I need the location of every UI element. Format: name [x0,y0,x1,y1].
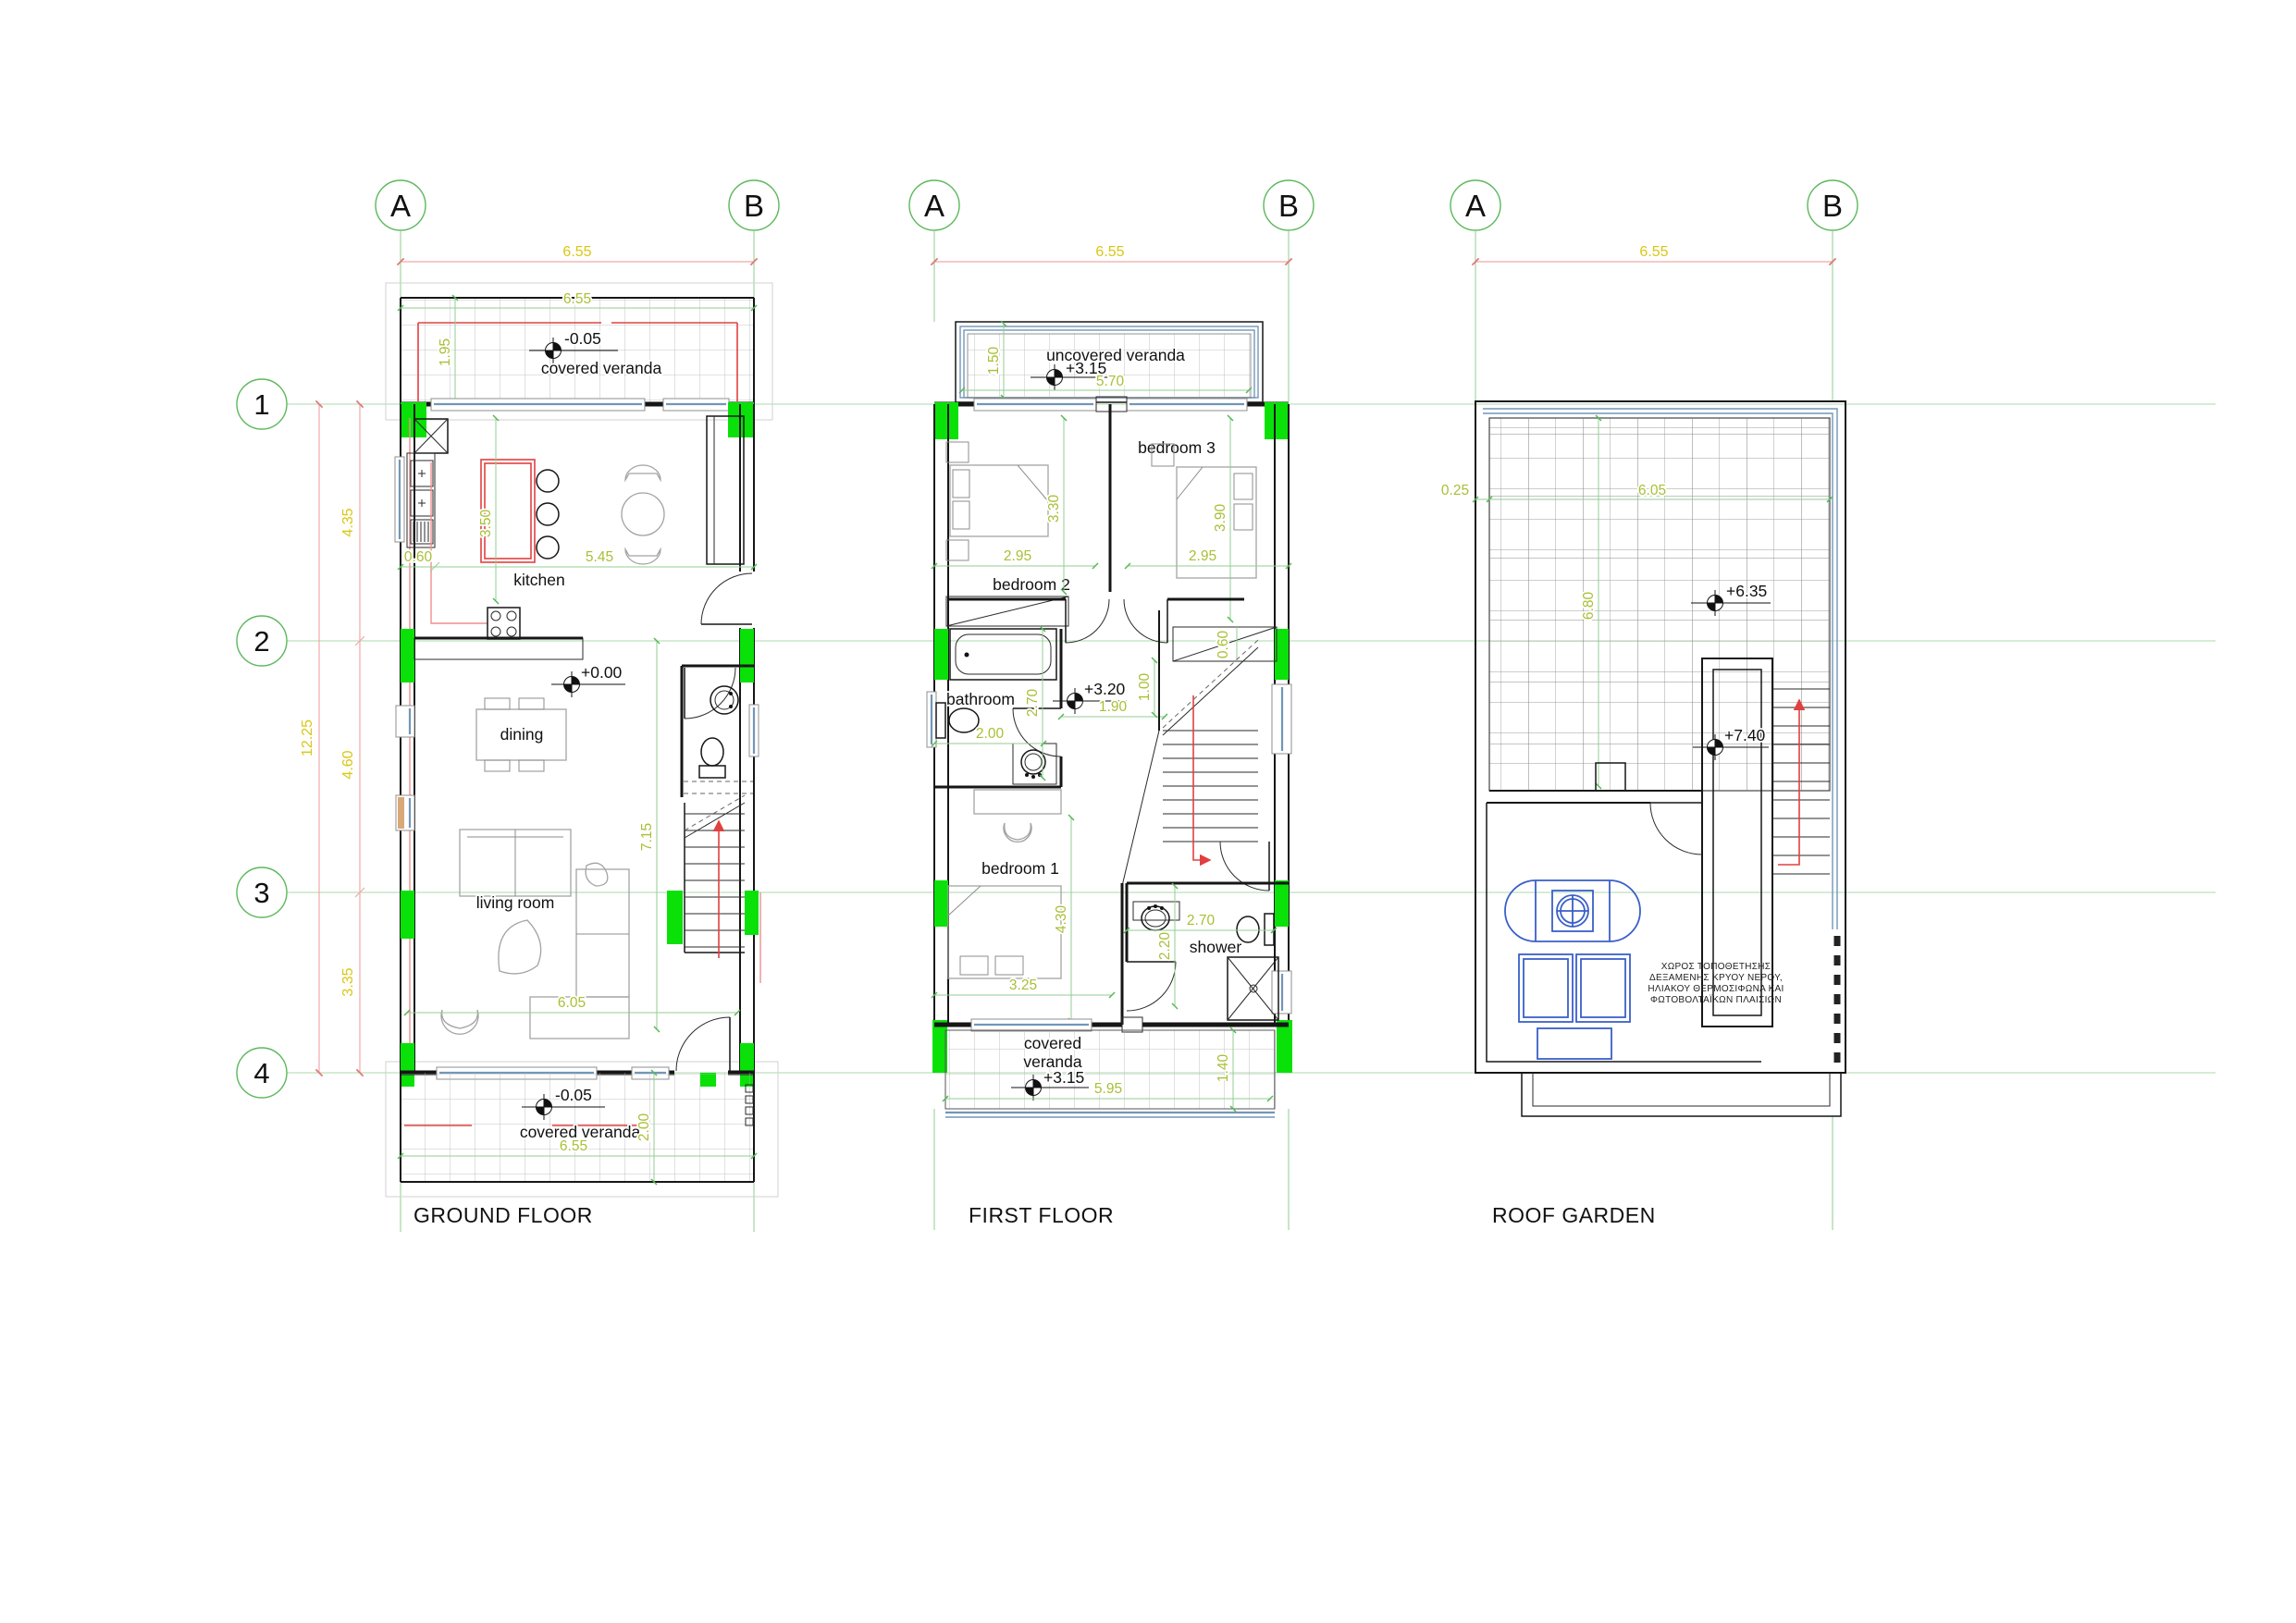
column-marker-a: A [390,189,411,223]
solar-panel-icon [1519,954,1630,1022]
stool-icon [537,536,559,559]
dim-kitchen-offset: 0.60 [404,549,433,565]
level-terrace: +6.35 [1726,582,1767,600]
dim-bathroom-depth: 2.70 [1025,689,1041,718]
room-label-living: living room [476,893,555,912]
level-veranda-top: -0.05 [564,329,601,348]
dim-bedroom3-depth: 3.90 [1213,504,1228,533]
plant-icon [586,863,608,886]
chair-icon [1004,823,1031,842]
dim-veranda-bottom-depth: 2.00 [636,1113,652,1142]
room-label-shower: shower [1190,938,1242,956]
roof-terrace: 0.25 6.05 6.80 +6.35 [1441,418,1830,791]
roof-veranda-slab [1522,1073,1841,1116]
wc-toilet-icon [701,738,723,766]
shower-door-arc [1127,962,1176,1011]
stool-icon [537,470,559,492]
dim-bedroom3-width: 2.95 [1189,548,1216,564]
toilet-tank [936,703,945,738]
room-inner-wall [1487,803,1761,1062]
window-frame [396,706,414,737]
level-hall: +3.20 [1084,680,1126,698]
dining-area: +0.00 dining [396,663,625,830]
stool-icon [537,503,559,525]
equipment-box-icon [1537,1028,1611,1059]
dim-living-width: 6.05 [558,995,586,1011]
row-marker-4: 4 [253,1057,269,1089]
ground-veranda-bottom: -0.05 covered veranda 2.00 6.55 [401,1073,754,1182]
roof-door-arc [1650,803,1702,855]
roof-note: ΧΩΡΟΣ ΤΟΠΟΘΕΤΗΣΗΣ ΔΕΞΑΜΕΝΗΣ ΚΡΥΟΥ ΝΕΡΟΥ,… [1648,962,1784,1005]
note-line-1: ΧΩΡΟΣ ΤΟΠΟΘΕΤΗΣΗΣ [1661,962,1771,972]
room-label-bedroom2: bedroom 2 [993,575,1070,594]
dim-kitchen-depth: 3.50 [478,510,494,538]
nightstand-icon [946,540,969,560]
column-marker-b: B [1822,189,1843,223]
level-main: +0.00 [581,663,623,682]
dim-veranda-bottom-width: 5.95 [1094,1081,1122,1097]
dim-overall: 6.55 [1095,244,1124,260]
dim-overall: 6.55 [1639,244,1668,260]
column-marker-a: A [1465,189,1486,223]
dim-bedroom2-width: 2.95 [1004,548,1031,564]
nightstand-icon [946,442,969,462]
dim-closet-depth: 0.60 [1216,631,1231,659]
level-veranda-bottom: -0.05 [555,1086,592,1104]
table-icon [622,493,664,535]
desk-icon [974,790,1061,814]
column-b1 [1265,402,1289,439]
room-label-bedroom1: bedroom 1 [981,859,1059,878]
dim-veranda-bottom-depth: 1.40 [1216,1054,1231,1083]
entrance-door [701,572,757,628]
chair-icon [625,465,660,480]
column-marker-a: A [924,189,944,223]
ground-stairs: 7.15 [639,641,745,1029]
dim-kitchen-width: 5.45 [586,549,613,565]
dim-bathroom-width: 2.00 [976,726,1005,742]
note-line-3: ΗΛΙΑΚΟΥ ΘΕΡΜΟΣΙΦΩΝΑ ΚΑΙ [1648,984,1784,994]
tall-cabinet [707,416,744,564]
row-marker-3: 3 [253,877,269,909]
first-floor-plan: A B 6.55 uncovered veranda +3.15 1.50 5.… [909,180,1314,1230]
room-label-veranda-top: covered veranda [541,359,662,377]
plan-title-ground: GROUND FLOOR [414,1203,593,1227]
plan-title-roof: ROOF GARDEN [1492,1203,1656,1227]
dim-span-3-4: 3.35 [340,967,356,996]
dim-bedroom2-depth: 3.30 [1046,495,1062,523]
toilet-icon [949,708,979,732]
dim-veranda-depth: 1.50 [986,347,1002,375]
vanity-counter [1133,902,1179,920]
stairs-direction-arrow [1193,695,1210,860]
dim-veranda-width: 6.55 [563,291,591,307]
dim-overall: 6.55 [562,244,591,260]
sofa-icon [576,869,629,997]
ground-columns [401,629,759,1087]
room-label-dining: dining [500,725,544,744]
dim-span-1-2: 4.35 [340,508,356,536]
veranda-door-arc [676,1017,730,1071]
room-label-veranda-bottom-1: covered [1024,1034,1081,1052]
row-marker-1: 1 [253,388,269,421]
note-line-4: ΦΩΤΟΒΟΛΤΑΪΚΩΝ ΠΛΑΙΣΙΩΝ [1650,994,1782,1005]
bedroom1-area: bedroom 1 4.30 3.25 [934,790,1122,1025]
room-label-kitchen: kitchen [513,571,564,589]
wc-area [682,666,759,797]
dim-parapet: 0.25 [1441,483,1469,498]
dim-bedroom1-depth: 4.30 [1054,905,1069,934]
wc-door-arc [685,668,735,719]
column-a1 [934,402,958,439]
coffee-table-icon [499,920,541,974]
ground-front-wall [401,399,754,437]
water-tank-icon [1505,880,1640,941]
ground-floor-plan: A B 6.55 12.25 4.35 4.60 3.35 [300,180,779,1232]
toilet-tank [1265,914,1274,945]
shower-area: shower 2.70 2.20 [1127,883,1289,1020]
dim-span-2-3: 4.60 [340,750,356,779]
first-veranda-bottom: covered veranda +3.15 5.95 1.40 [945,1030,1275,1117]
bedroom2-area: bedroom 2 3.30 2.95 [934,418,1095,626]
living-room-area: living room 6.05 [407,830,737,1039]
column-marker-b: B [744,189,764,223]
dim-bedroom1-width: 3.25 [1009,977,1037,993]
room-label-bedroom3: bedroom 3 [1138,438,1216,457]
first-veranda-top: uncovered veranda +3.15 1.50 5.70 [956,322,1263,402]
dim-veranda-depth: 1.95 [438,338,453,366]
grid-row-markers: 1 2 3 4 [237,379,287,1098]
ground-veranda-top: 6.55 1.95 -0.05 covered veranda [401,291,754,404]
dim-terrace-depth: 6.80 [1581,592,1597,621]
row-marker-2: 2 [253,625,269,658]
chair-icon [625,549,660,564]
bedroom2-door-arc [1066,599,1109,643]
dim-stair-zone: 7.15 [639,823,655,851]
armchair-icon [441,1010,478,1034]
dim-hall-depth: 1.00 [1137,673,1153,702]
bathroom-area: bathroom 2.70 2.00 [934,629,1061,787]
dim-veranda-bottom-width: 6.55 [560,1138,587,1154]
column-marker-b: B [1278,189,1299,223]
kitchen-area: kitchen 3.50 0.60 5.45 [395,416,754,659]
first-stairs [1122,610,1269,891]
note-line-2: ΔΕΞΑΜΕΝΗΣ ΚΡΥΟΥ ΝΕΡΟΥ, [1649,973,1783,983]
dim-terrace-width: 6.05 [1638,483,1666,498]
plan-title-first: FIRST FLOOR [969,1203,1114,1227]
bedroom3-area: bedroom 3 3.90 2.95 [1110,404,1289,620]
level-stairhead: +7.40 [1724,726,1766,744]
roof-garden-plan: A B 6.55 0.25 6.05 6.80 +6.35 [1441,180,1858,1230]
dim-shower-width: 2.70 [1187,913,1216,928]
bedroom3-door-arc [1124,599,1167,643]
drawing-sheet: 1 2 3 4 A B 6.55 12.25 4.35 4.60 3.35 [0,0,2296,1623]
roof-equipment-room: ΧΩΡΟΣ ΤΟΠΟΘΕΤΗΣΗΣ ΔΕΞΑΜΕΝΗΣ ΚΡΥΟΥ ΝΕΡΟΥ,… [1487,803,1784,1062]
dim-hall-width: 1.90 [1099,699,1128,715]
room-label-bathroom: bathroom [946,690,1015,708]
dim-total-depth: 12.25 [300,719,315,756]
ground-left-dimensions: 12.25 4.35 4.60 3.35 [300,404,364,1073]
level-veranda-bottom: +3.15 [1043,1068,1084,1087]
dim-shower-depth: 2.20 [1157,932,1173,961]
dim-veranda-width: 5.70 [1096,374,1125,389]
plans-drawing: 1 2 3 4 A B 6.55 12.25 4.35 4.60 3.35 [0,0,2296,1623]
